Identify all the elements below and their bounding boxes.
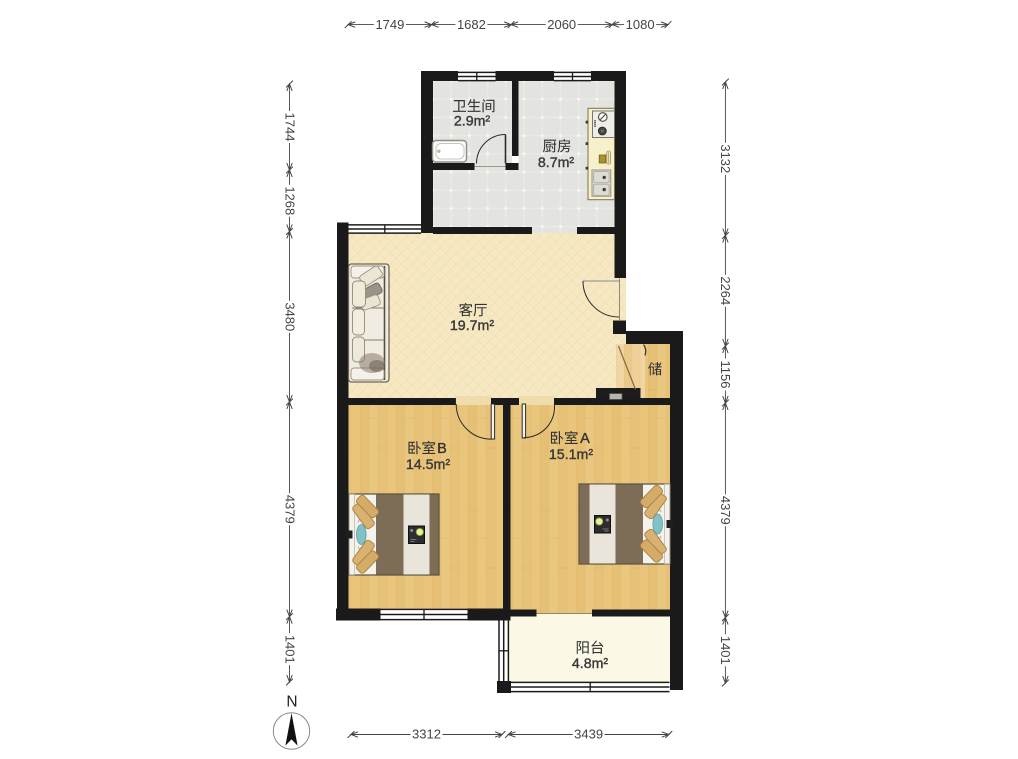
- svg-text:3312: 3312: [412, 727, 441, 742]
- svg-text:1682: 1682: [457, 17, 486, 32]
- svg-text:1744: 1744: [282, 113, 297, 142]
- svg-text:3132: 3132: [718, 144, 733, 173]
- svg-text:1401: 1401: [718, 636, 733, 665]
- svg-text:19.7m²: 19.7m²: [450, 318, 494, 334]
- svg-text:15.1m²: 15.1m²: [549, 447, 593, 463]
- svg-text:2.9m²: 2.9m²: [454, 114, 491, 130]
- svg-text:A: A: [580, 431, 590, 447]
- svg-text:3480: 3480: [282, 302, 297, 331]
- svg-text:1156: 1156: [718, 361, 733, 389]
- svg-text:B: B: [437, 441, 447, 457]
- svg-text:4379: 4379: [282, 495, 297, 524]
- svg-text:8.7m²: 8.7m²: [538, 155, 575, 171]
- svg-text:3439: 3439: [574, 727, 603, 742]
- svg-text:2060: 2060: [547, 17, 576, 32]
- svg-text:1268: 1268: [282, 186, 297, 215]
- svg-text:14.5m²: 14.5m²: [406, 457, 450, 473]
- svg-text:2264: 2264: [718, 276, 733, 305]
- svg-text:1749: 1749: [375, 17, 404, 32]
- svg-text:4379: 4379: [718, 496, 733, 525]
- svg-text:1401: 1401: [282, 635, 297, 664]
- svg-text:N: N: [286, 694, 297, 711]
- svg-text:1080: 1080: [626, 17, 655, 32]
- svg-text:4.8m²: 4.8m²: [572, 656, 609, 672]
